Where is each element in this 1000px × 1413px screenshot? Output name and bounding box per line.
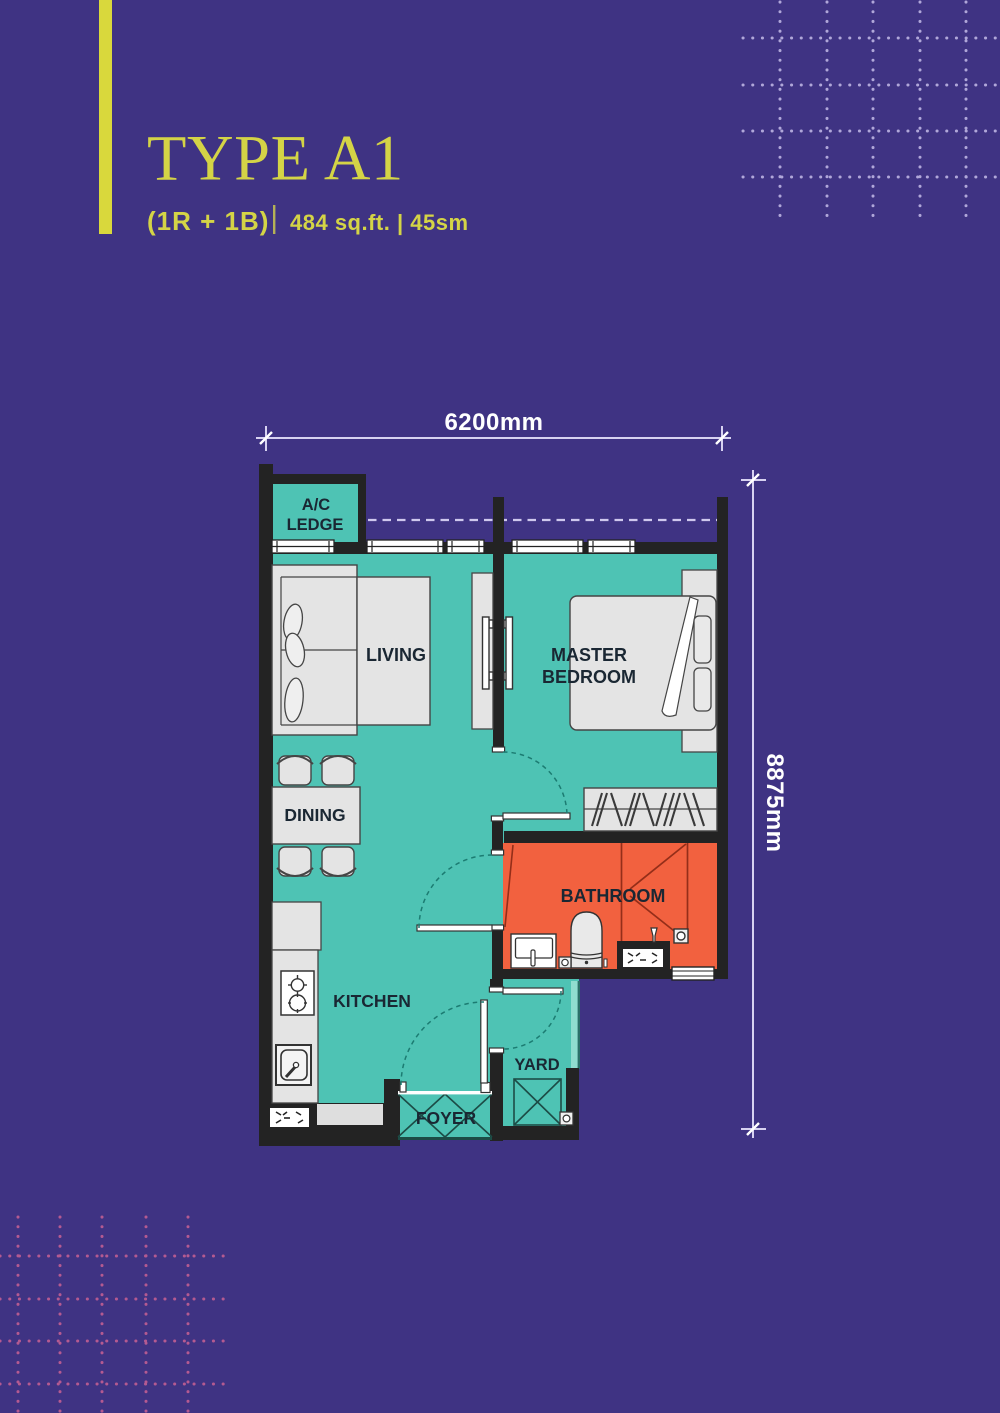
svg-text:8875mm: 8875mm: [761, 753, 788, 852]
svg-text:484 sq.ft. | 45sm: 484 sq.ft. | 45sm: [290, 210, 469, 235]
svg-text:A/C: A/C: [302, 496, 331, 514]
svg-text:MASTER: MASTER: [551, 645, 627, 665]
svg-text:LEDGE: LEDGE: [287, 516, 344, 534]
svg-text:(1R + 1B): (1R + 1B): [147, 206, 269, 236]
svg-text:BEDROOM: BEDROOM: [542, 667, 636, 687]
svg-text:YARD: YARD: [514, 1056, 559, 1074]
svg-text:LIVING: LIVING: [366, 645, 426, 665]
svg-text:DINING: DINING: [284, 805, 345, 825]
svg-text:KITCHEN: KITCHEN: [333, 991, 411, 1011]
svg-text:6200mm: 6200mm: [444, 409, 543, 436]
svg-text:TYPE A1: TYPE A1: [147, 123, 404, 194]
svg-text:FOYER: FOYER: [416, 1108, 477, 1128]
svg-text:BATHROOM: BATHROOM: [561, 886, 666, 906]
